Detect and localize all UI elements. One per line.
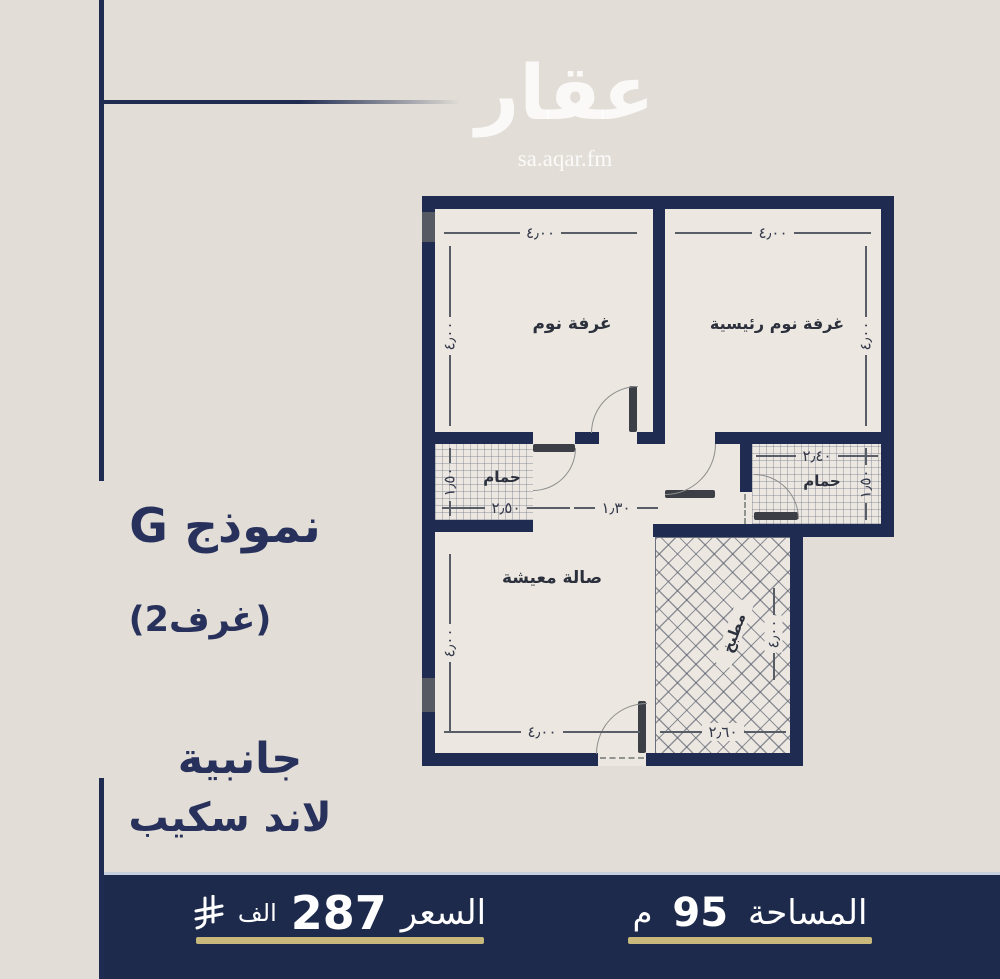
dim-master-width: ٤٫٠٠ [675,222,871,244]
dim-hall-width: ١٫٣٠ [574,498,658,518]
wall-bottom-right [646,753,803,766]
dimension-line [449,246,450,317]
bedroom-label: غرفة نوم [482,314,662,334]
wall-bath1-top [435,432,533,444]
living-room-label: صالة معيشة [462,568,642,588]
window-mark-living [422,678,435,712]
area-underline [628,937,872,944]
wall-bath2-left-stub [740,432,752,492]
dimension-line [637,507,658,508]
dimension-line [449,501,450,516]
dimension-line [449,355,450,426]
wall-hall-top-a [575,432,599,444]
orientation-label: جانبية [120,735,360,784]
window-mark-top-left [422,212,435,242]
dimension-line [773,588,774,615]
dimension-line [865,448,866,465]
price-label: السعر [401,893,486,933]
dimension-line [660,731,702,732]
price-underline [196,937,484,944]
model-title: نموذج G [95,500,355,554]
dimension-line [449,554,450,624]
wall-bath2-top [740,432,881,444]
area-label: المساحة [748,893,867,933]
dim-bedroom-width: ٤٫٠٠ [444,222,637,244]
bathroom-1-label: حمام [452,468,552,486]
price-group: السعر 287 الف [190,887,490,939]
dimension-line [449,662,450,732]
dimension-line [794,232,871,233]
dim-living-height: ٤٫٠٠ [438,554,462,732]
rooms-count: (2غرف) [95,600,305,640]
dimension-line [865,503,866,520]
wall-hall-top-b [637,432,653,444]
dim-bedroom-height: ٤٫٠٠ [438,246,462,426]
dimension-line [574,507,595,508]
master-bedroom-label: غرفة نوم رئيسية [677,314,877,333]
saudi-riyal-icon [194,895,224,931]
dimension-line [527,507,570,508]
area-value: 95 [672,890,728,936]
dimension-line [675,232,752,233]
wall-bath1-bottom [435,520,533,532]
wall-section-divider [752,524,894,537]
wall-corridor-bottom [653,524,752,537]
wall-kitchen-right [790,524,803,766]
dimension-line [756,455,796,456]
price-value: 287 [291,886,387,940]
dimension-line [563,731,640,732]
dimension-line [449,448,450,463]
frame-line-vertical-top [99,0,104,481]
dimension-line [773,653,774,680]
master-door-arc [665,444,716,495]
dim-bath2-height: ١٫٥٠ [854,448,878,520]
dim-master-height: ٤٫٠٠ [854,246,878,426]
area-group: المساحة 95 م [620,887,880,939]
dimension-line [744,731,786,732]
ad-canvas: عقار sa.aqar.fm نموذج G (2غرف) جانبية لا… [0,0,1000,979]
dim-kitchen-height: ٤٫٠٠ [762,588,786,680]
wall-bottom-left [422,753,598,766]
aqar-logo: عقار [440,55,690,131]
dimension-line [444,232,520,233]
price-unit: الف [238,899,277,927]
dim-kitchen-width: ٢٫٦٠ [660,721,786,743]
dim-bath1-height: ١٫٥٠ [438,448,462,516]
dim-living-width: ٤٫٠٠ [444,721,640,743]
floor-plan: غرفة نوم غرفة نوم رئيسية حمام حمام صالة … [422,196,894,766]
dimension-line [561,232,637,233]
bedroom-door-arc [591,386,638,433]
bathroom-2-door-opening [744,494,746,524]
wall-right-upper [881,196,894,541]
dimension-line [865,246,866,317]
entry-door-opening [600,757,644,759]
wall-master-bottom-stub [715,432,740,444]
dimension-line [865,355,866,426]
area-unit: م [633,894,653,932]
footer-bar: السعر 287 الف المساحة 95 م [104,872,1000,979]
aqar-site-url: sa.aqar.fm [440,146,690,172]
plan-exterior-cutout [803,537,894,766]
style-label: لاند سكيب [100,795,360,841]
frame-line-horizontal [101,100,461,104]
